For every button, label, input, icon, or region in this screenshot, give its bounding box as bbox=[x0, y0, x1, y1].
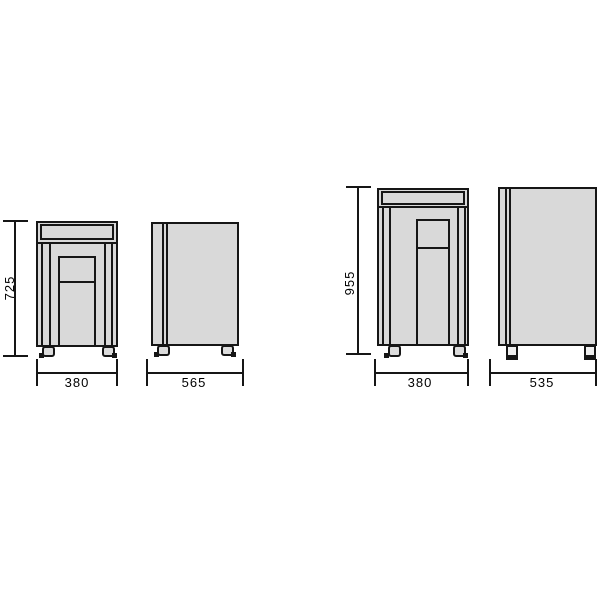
machine1-height-label: 725 bbox=[3, 268, 17, 308]
machine1-left-column-inner-line bbox=[49, 244, 51, 347]
machine2-side-right-foot bbox=[584, 345, 596, 360]
machine1-right-column-outer-line bbox=[111, 244, 113, 347]
machine1-height-dim-bottom-tick bbox=[3, 355, 28, 357]
machine1-side-front-edge-line-1 bbox=[162, 223, 164, 345]
dimension-diagram: 725 380 565 955 380 535 bbox=[0, 0, 600, 600]
machine1-depth-dim-line bbox=[146, 372, 244, 374]
machine1-width-dim-line bbox=[36, 372, 118, 374]
machine2-door-panel bbox=[416, 219, 450, 346]
machine2-side-depth-label: 535 bbox=[522, 376, 562, 390]
machine2-side-left-foot bbox=[506, 345, 518, 360]
machine2-height-dim-line bbox=[357, 187, 359, 355]
machine1-front-right-caster-wheel-icon bbox=[112, 353, 117, 358]
machine2-front-left-caster-wheel-icon bbox=[384, 353, 389, 358]
machine1-side-depth-label: 565 bbox=[174, 376, 214, 390]
machine1-side-left-caster-wheel-icon bbox=[154, 352, 159, 357]
machine2-shoulder-line bbox=[378, 206, 468, 208]
machine2-window-divider-line bbox=[417, 247, 449, 249]
machine2-side-front-edge-line-2 bbox=[509, 188, 511, 345]
machine1-top-panel bbox=[40, 224, 114, 240]
machine2-front-width-label: 380 bbox=[400, 376, 440, 390]
machine1-side-front-edge-line-2 bbox=[166, 223, 168, 345]
machine1-right-column-inner-line bbox=[104, 244, 106, 347]
machine2-front-right-caster-wheel-icon bbox=[463, 353, 468, 358]
machine2-right-column-outer-line bbox=[464, 208, 466, 346]
machine1-window-divider-line bbox=[59, 281, 95, 283]
machine2-height-dim-top-tick bbox=[346, 186, 371, 188]
machine2-side-front-edge-line-1 bbox=[505, 188, 507, 345]
machine2-left-column-outer-line bbox=[382, 208, 384, 346]
machine1-height-dim-top-tick bbox=[3, 220, 28, 222]
machine2-top-panel bbox=[381, 191, 465, 205]
machine2-height-label: 955 bbox=[343, 263, 357, 303]
machine2-depth-dim-line bbox=[489, 372, 597, 374]
machine2-width-dim-line bbox=[374, 372, 469, 374]
machine1-side-right-caster-wheel-icon bbox=[231, 352, 236, 357]
machine2-left-column-inner-line bbox=[389, 208, 391, 346]
machine2-side-body bbox=[498, 187, 597, 346]
machine2-height-dim-bottom-tick bbox=[346, 353, 371, 355]
machine2-front-left-caster bbox=[388, 345, 401, 357]
machine1-side-body bbox=[151, 222, 239, 346]
machine1-door-panel bbox=[58, 256, 96, 347]
machine1-front-left-caster-wheel-icon bbox=[39, 353, 44, 358]
machine1-left-column-outer-line bbox=[41, 244, 43, 347]
machine1-front-width-label: 380 bbox=[57, 376, 97, 390]
mach2-right-column-inner-line bbox=[457, 208, 459, 346]
